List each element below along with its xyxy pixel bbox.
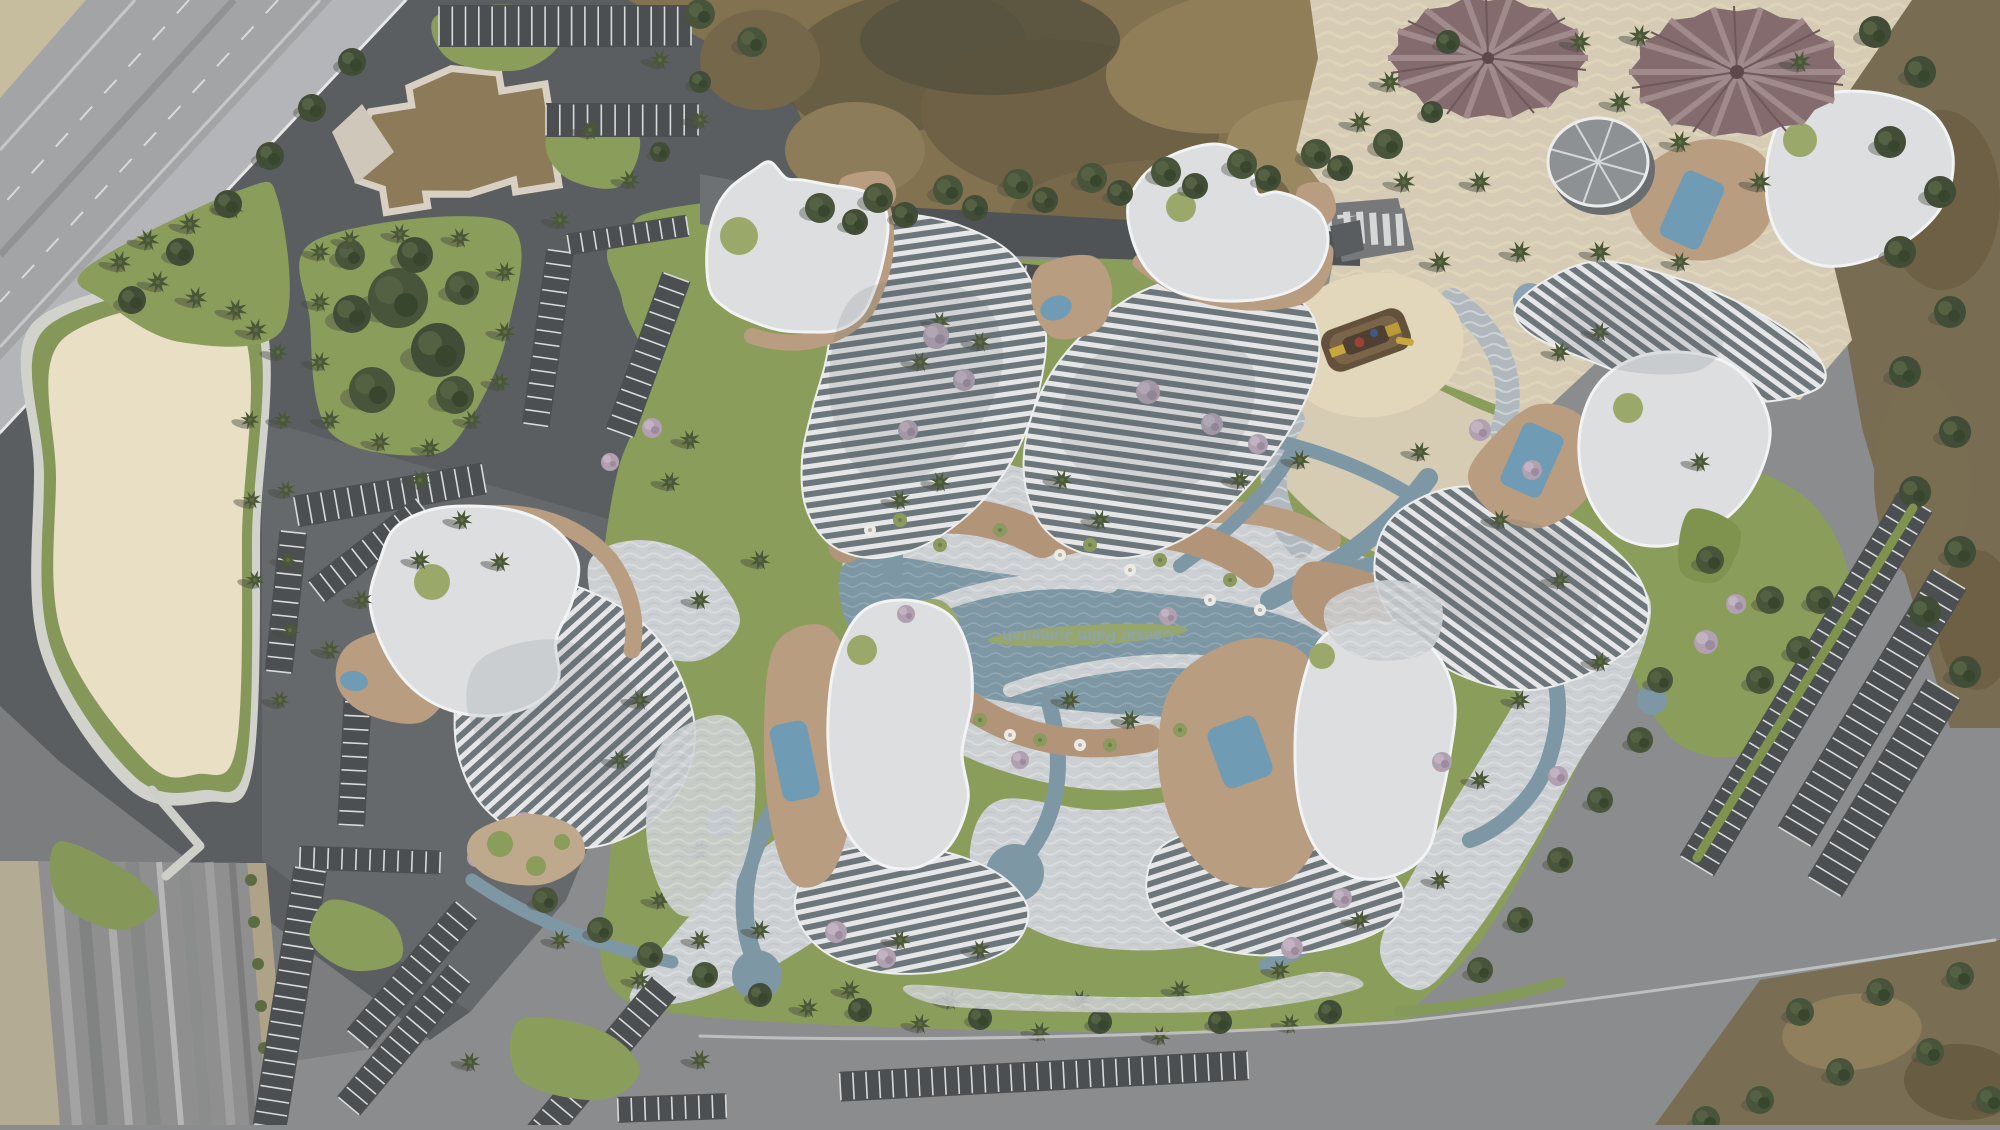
svg-text:Caesar Palm Jumeirah: Caesar Palm Jumeirah <box>1002 627 1174 644</box>
